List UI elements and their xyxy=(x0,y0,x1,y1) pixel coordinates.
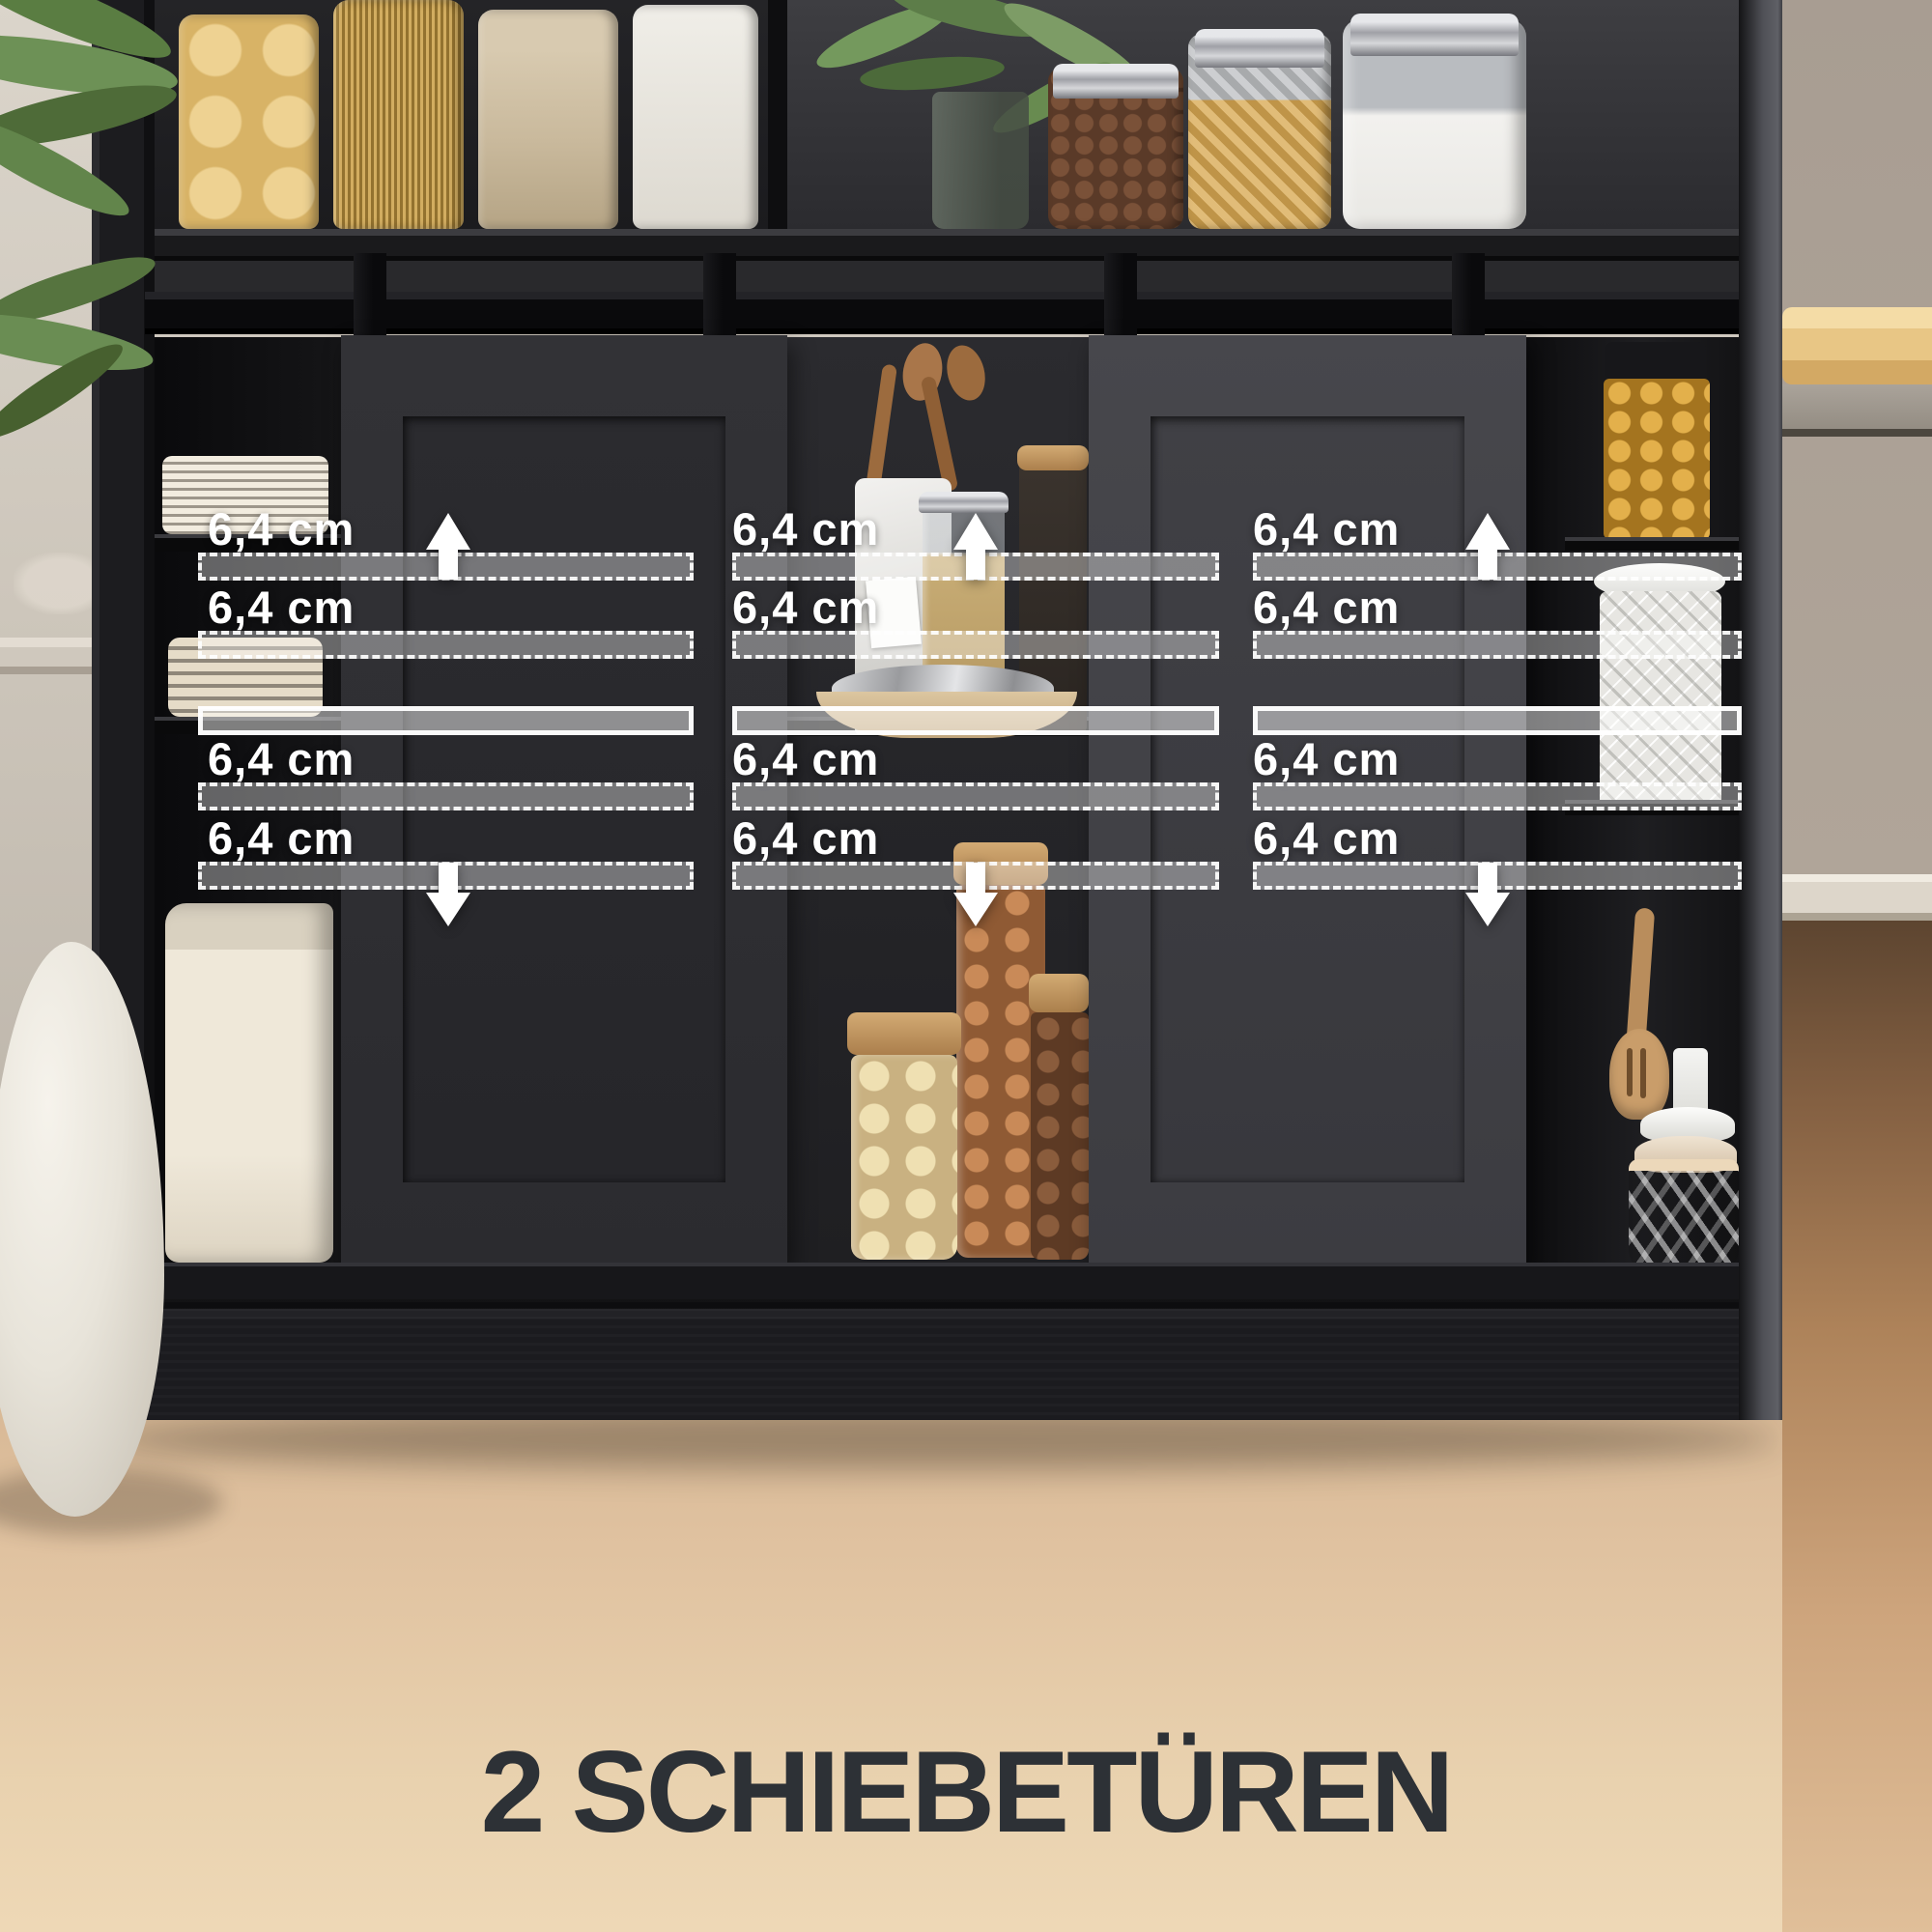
up-arrow-icon xyxy=(953,513,998,580)
measurement-label: 6,4 cm xyxy=(1253,584,1400,630)
measurement-column-left: 6,4 cm 6,4 cm 6,4 cm 6,4 cm xyxy=(198,0,694,1932)
shelf-position-bar xyxy=(732,631,1219,659)
measurement-label: 6,4 cm xyxy=(732,815,879,861)
measurement-label: 6,4 cm xyxy=(732,736,879,781)
down-arrow-icon xyxy=(426,863,470,926)
product-photo-scene: 6,4 cm 6,4 cm 6,4 cm 6,4 cm 6,4 cm 6,4 c… xyxy=(0,0,1932,1932)
measurement-column-right: 6,4 cm 6,4 cm 6,4 cm 6,4 cm xyxy=(1253,0,1742,1932)
fixed-shelf-bar xyxy=(1253,706,1742,735)
measurement-label: 6,4 cm xyxy=(208,815,355,861)
shelf-position-bar xyxy=(198,782,694,810)
shelf-position-bar xyxy=(198,631,694,659)
down-arrow-icon xyxy=(1465,863,1510,926)
potted-plant-leaves xyxy=(0,0,213,444)
up-arrow-icon xyxy=(426,513,470,580)
background-table-board xyxy=(1782,384,1932,429)
measurement-label: 6,4 cm xyxy=(1253,815,1400,861)
measurement-label: 6,4 cm xyxy=(732,506,879,552)
background-table-shadow-line xyxy=(1782,429,1932,437)
measurement-label: 6,4 cm xyxy=(208,584,355,630)
cabinet-side-panel-right xyxy=(1739,0,1782,1420)
caption-title: 2 SCHIEBETÜREN xyxy=(0,1739,1932,1845)
shelf-position-bar xyxy=(1253,782,1742,810)
measurement-label: 6,4 cm xyxy=(732,584,879,630)
measurement-label: 6,4 cm xyxy=(208,506,355,552)
fixed-shelf-bar xyxy=(732,706,1219,735)
down-arrow-icon xyxy=(953,863,998,926)
measurement-label: 6,4 cm xyxy=(208,736,355,781)
shelf-position-bar xyxy=(1253,631,1742,659)
up-arrow-icon xyxy=(1465,513,1510,580)
measurement-column-center: 6,4 cm 6,4 cm 6,4 cm 6,4 cm xyxy=(732,0,1219,1932)
measurement-label: 6,4 cm xyxy=(1253,506,1400,552)
wall-right xyxy=(1782,0,1932,1932)
baseboard-right xyxy=(1782,874,1932,921)
wall-carving-molding xyxy=(14,553,92,614)
fixed-shelf-bar xyxy=(198,706,694,735)
shelf-position-bar xyxy=(732,782,1219,810)
measurement-label: 6,4 cm xyxy=(1253,736,1400,781)
chair-rail-molding xyxy=(0,638,92,674)
background-table-edge xyxy=(1782,307,1932,384)
